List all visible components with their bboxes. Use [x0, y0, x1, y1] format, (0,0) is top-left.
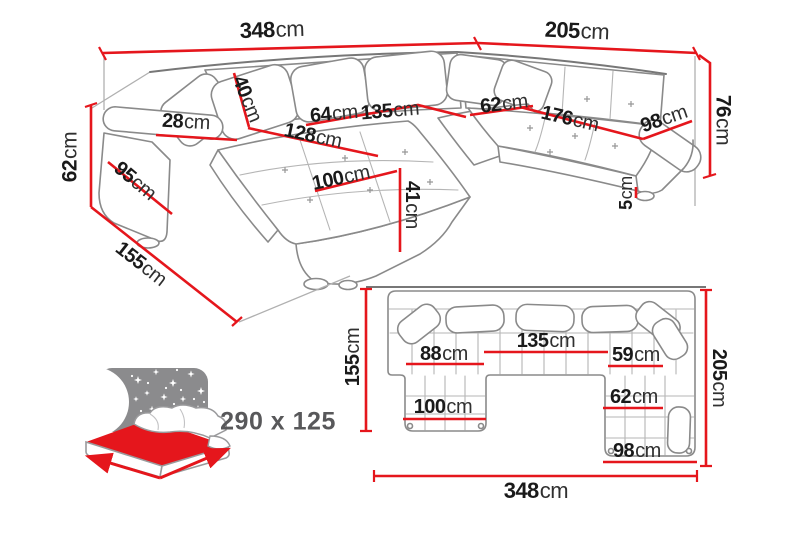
corner-sofa-dimension-diagram: 348cm 205cm 76cm 62cm 28cm 95cm 155cm 40… [0, 0, 800, 533]
dim-label-back-height: 76cm [713, 95, 734, 145]
plan-label-corner-width: 98cm [613, 441, 661, 461]
dim-label-seat-depth-left: 64cm [309, 102, 358, 126]
wall-floor-edge [92, 72, 150, 108]
sofa-foot [304, 279, 328, 290]
dim-label-back-width-right: 205cm [544, 19, 609, 44]
plan-label-left-side: 155cm [343, 328, 363, 386]
plan-label-left-seat: 88cm [420, 344, 468, 364]
diagram-canvas [0, 0, 800, 533]
sleeping-function-icon [59, 367, 230, 478]
plan-label-right-seat: 59cm [612, 345, 660, 365]
plan-label-chaise-width: 100cm [414, 397, 472, 417]
plan-label-total-width: 348cm [504, 480, 568, 502]
sleeping-area-size: 290 x 125 [220, 408, 336, 437]
plan-label-right-side: 205cm [709, 349, 729, 407]
moon-crescent-icon [59, 367, 129, 437]
dim-line-205 [478, 43, 697, 53]
dim-label-back-width-left: 348cm [239, 18, 304, 42]
dim-label-armrest-top-width: 28cm [162, 111, 211, 133]
plan-armrest [667, 407, 691, 454]
plan-label-corner-depth: 62cm [610, 387, 658, 407]
sofa-foot [636, 192, 654, 201]
dim-label-seat-height: 41cm [402, 181, 422, 229]
pillow [445, 305, 504, 334]
sofa-plan-sketch [388, 291, 695, 456]
blanket-corner [208, 436, 230, 449]
pillow [516, 304, 575, 332]
pillow [582, 305, 639, 333]
plan-label-middle-seat: 135cm [517, 331, 575, 351]
dim-label-leg-height: 5cm [617, 176, 635, 210]
sofa-foot [339, 281, 357, 290]
dim-label-armrest-height: 62cm [60, 132, 81, 182]
floor-guide-line [239, 276, 350, 322]
dim-label-seat-width-left: 135cm [360, 98, 420, 123]
